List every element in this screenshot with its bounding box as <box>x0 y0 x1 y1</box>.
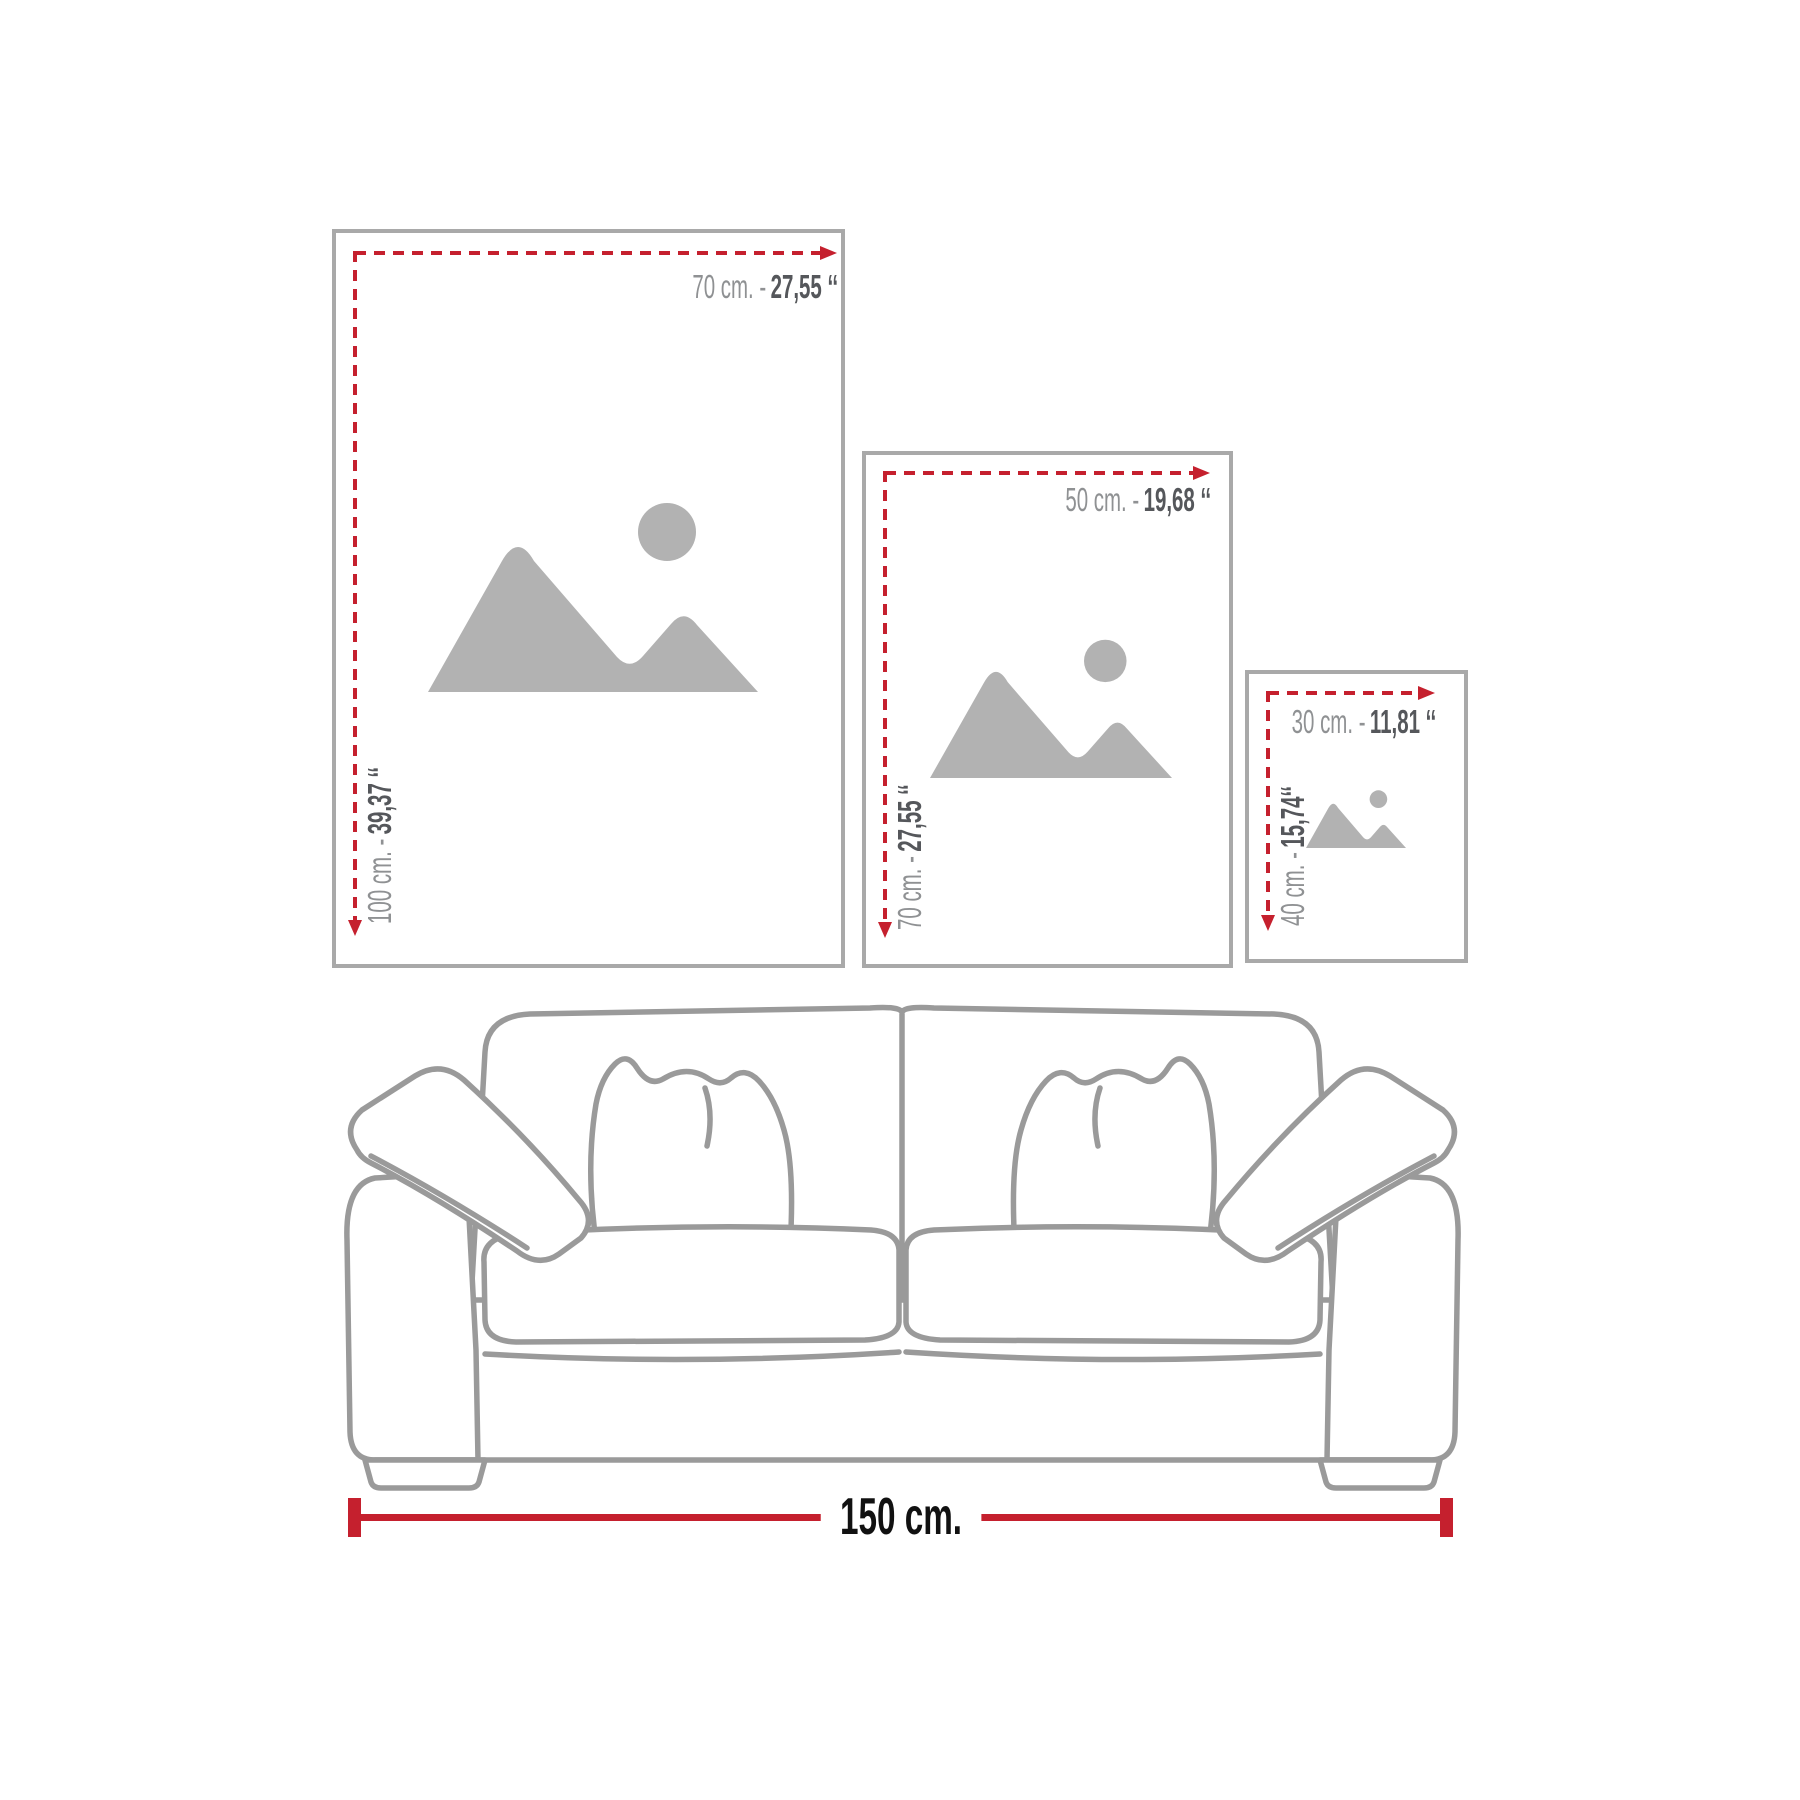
width-dimension-label: 70 cm. -27,55 ‘‘ <box>692 270 838 305</box>
height-dimension-arrow <box>353 251 357 920</box>
poster-frame-medium: 50 cm. -19,68 ‘‘ 70 cm. -27,55 ‘‘ <box>862 451 1233 968</box>
wall-art-size-guide-diagram: 70 cm. -27,55 ‘‘ 100 cm. -39,37 ‘‘ 50 cm… <box>0 0 1800 1800</box>
width-dimension-label: 30 cm. -11,81 ‘‘ <box>1291 705 1436 740</box>
sofa-foot-left <box>365 1460 485 1488</box>
width-metric-text: 70 cm. - <box>692 268 766 305</box>
height-metric-text: 100 cm. - <box>361 839 398 924</box>
sofa-seat-fold-left <box>485 1352 899 1360</box>
height-metric-text: 40 cm. - <box>1274 852 1311 926</box>
poster-frame-large: 70 cm. -27,55 ‘‘ 100 cm. -39,37 ‘‘ <box>332 229 845 968</box>
width-imperial-text: 11,81 ‘‘ <box>1370 703 1436 740</box>
image-placeholder-icon <box>1306 790 1406 848</box>
width-dimension-arrow <box>355 251 820 255</box>
sofa-seat-fold-right <box>906 1352 1320 1360</box>
height-metric-text: 70 cm. - <box>891 856 928 930</box>
height-dimension-arrow <box>1266 691 1270 915</box>
width-metric-text: 30 cm. - <box>1291 703 1365 740</box>
width-imperial-text: 27,55 ‘‘ <box>770 268 838 305</box>
width-dimension-arrow <box>885 471 1193 475</box>
height-dimension-label: 70 cm. -27,55 ‘‘ <box>893 784 928 930</box>
image-placeholder-icon <box>930 639 1172 778</box>
sofa-width-measure: 150 cm. <box>348 1498 1453 1537</box>
width-dimension-label: 50 cm. -19,68 ‘‘ <box>1065 483 1211 518</box>
sofa-illustration <box>295 1000 1510 1492</box>
sofa-width-label: 150 cm. <box>820 1491 981 1543</box>
image-placeholder-icon <box>428 502 758 692</box>
height-imperial-text: 39,37 ‘‘ <box>361 767 398 835</box>
width-dimension-arrow <box>1268 691 1418 695</box>
sofa-foot-right <box>1320 1460 1440 1488</box>
poster-frame-small: 30 cm. -11,81 ‘‘ 40 cm. -15,74‘‘ <box>1245 670 1468 963</box>
width-imperial-text: 19,68 ‘‘ <box>1143 481 1211 518</box>
sofa-armrest-right <box>1327 1174 1458 1460</box>
sofa-armrest-left <box>347 1174 478 1460</box>
height-dimension-arrow <box>883 471 887 922</box>
width-metric-text: 50 cm. - <box>1065 481 1139 518</box>
measure-end-cap-right <box>1440 1498 1453 1537</box>
height-dimension-label: 100 cm. -39,37 ‘‘ <box>363 767 398 924</box>
height-imperial-text: 27,55 ‘‘ <box>891 784 928 852</box>
